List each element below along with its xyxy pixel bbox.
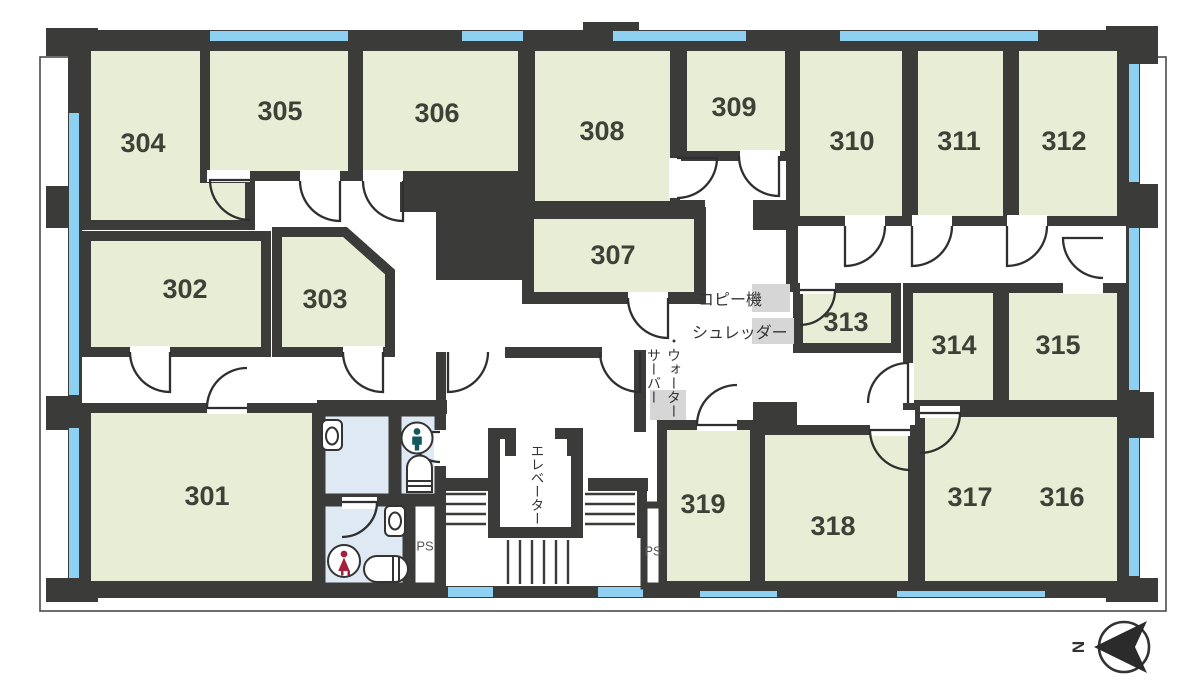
room-label-312: 312 xyxy=(1041,126,1086,156)
window-strip xyxy=(210,31,348,41)
window-strip xyxy=(69,428,79,578)
urinal-icon xyxy=(407,455,432,492)
room-label-302: 302 xyxy=(162,274,207,304)
room-label-319: 319 xyxy=(680,489,725,519)
room-label-309: 309 xyxy=(711,92,756,122)
window-strip xyxy=(69,113,79,395)
toilet-side-icon xyxy=(364,556,408,582)
toilet-icon xyxy=(322,420,342,450)
window-strip xyxy=(1129,64,1139,182)
room-label-301: 301 xyxy=(184,481,229,511)
copier-label: コピー機 xyxy=(698,291,762,309)
floor-plan-page: 301 302 303 304 305 306 307 308 309 310 … xyxy=(0,0,1200,681)
room-label-314: 314 xyxy=(931,330,976,360)
room-318 xyxy=(760,430,913,586)
toilet-icon xyxy=(385,506,405,536)
room-label-305: 305 xyxy=(257,96,302,126)
window-strip xyxy=(840,31,1038,41)
room-label-307: 307 xyxy=(590,240,635,270)
shredder-label: シュレッダー xyxy=(692,324,788,342)
window-strip xyxy=(448,587,493,597)
room-label-316: 316 xyxy=(1039,482,1084,512)
window-strip xyxy=(1129,228,1139,390)
ps-label-right: PS xyxy=(644,544,662,559)
male-icon xyxy=(402,423,433,454)
water-server-label-line2: サーバー xyxy=(646,348,662,404)
room-label-318: 318 xyxy=(810,511,855,541)
female-icon xyxy=(328,545,360,577)
room-label-306: 306 xyxy=(414,98,459,128)
water-server-label-line1: ・ウォーター xyxy=(666,334,682,418)
room-label-317: 317 xyxy=(947,482,992,512)
north-label: N xyxy=(1069,641,1088,653)
room-label-308: 308 xyxy=(579,116,624,146)
room-label-315: 315 xyxy=(1035,330,1080,360)
north-compass: N xyxy=(1069,621,1150,673)
room-label-311: 311 xyxy=(937,126,981,156)
elevator-label: エレベーター xyxy=(529,444,545,525)
room-label-313: 313 xyxy=(823,307,868,337)
window-strip xyxy=(462,31,523,41)
room-label-310: 310 xyxy=(829,126,874,156)
window-strip xyxy=(1129,438,1139,576)
room-label-303: 303 xyxy=(302,284,347,314)
room-label-304: 304 xyxy=(120,128,165,158)
ps-label-left: PS xyxy=(416,539,434,554)
floor-plan: 301 302 303 304 305 306 307 308 309 310 … xyxy=(0,0,1200,681)
window-strip xyxy=(613,31,746,41)
window-strip xyxy=(598,587,643,597)
